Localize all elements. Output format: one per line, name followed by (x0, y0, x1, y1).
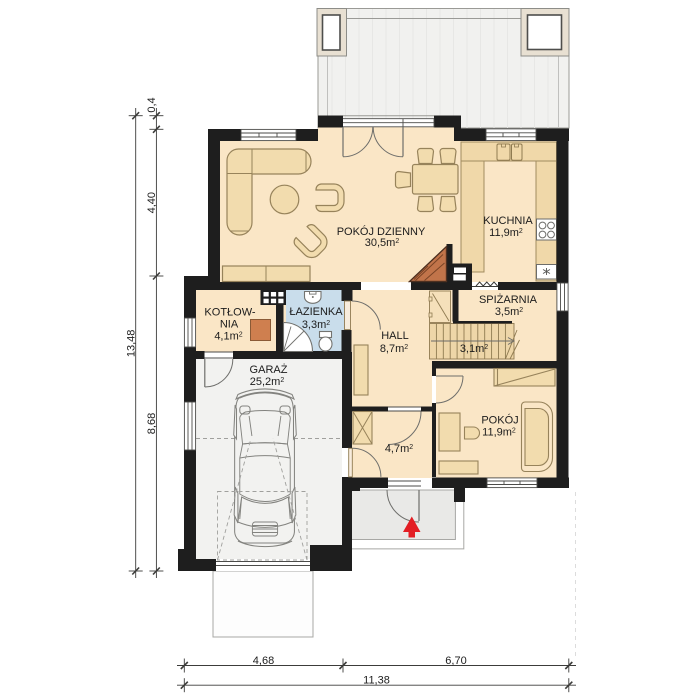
svg-text:11,9m2: 11,9m2 (482, 427, 516, 439)
svg-text:11,38: 11,38 (363, 675, 390, 687)
svg-text:HALL: HALL (381, 330, 409, 342)
svg-text:NIA: NIA (220, 319, 239, 331)
svg-text:3,1m2: 3,1m2 (460, 343, 488, 355)
svg-text:13,48: 13,48 (126, 330, 138, 358)
svg-text:ŁAZIENKA: ŁAZIENKA (289, 306, 343, 318)
svg-text:30,5m2: 30,5m2 (365, 237, 400, 249)
svg-text:3,5m2: 3,5m2 (495, 306, 523, 318)
svg-text:3,3m2: 3,3m2 (302, 319, 330, 331)
svg-text:GARAŻ: GARAŻ (250, 363, 288, 376)
svg-text:SPIŻARNIA: SPIŻARNIA (479, 293, 538, 306)
svg-text:KOTŁOW-: KOTŁOW- (204, 307, 255, 319)
svg-text:8,7m2: 8,7m2 (380, 343, 408, 355)
svg-text:POKÓJ: POKÓJ (481, 414, 518, 427)
svg-text:4,68: 4,68 (253, 655, 274, 667)
svg-text:25,2m2: 25,2m2 (250, 376, 285, 388)
svg-text:KUCHNIA: KUCHNIA (483, 215, 533, 227)
svg-text:11,9m2: 11,9m2 (489, 227, 523, 239)
svg-text:8,68: 8,68 (146, 413, 158, 434)
svg-text:0,4: 0,4 (146, 97, 158, 112)
svg-text:6,70: 6,70 (445, 655, 466, 667)
svg-text:4,40: 4,40 (146, 192, 158, 213)
svg-text:4,7m2: 4,7m2 (385, 443, 413, 455)
svg-text:4,1m2: 4,1m2 (214, 331, 242, 343)
